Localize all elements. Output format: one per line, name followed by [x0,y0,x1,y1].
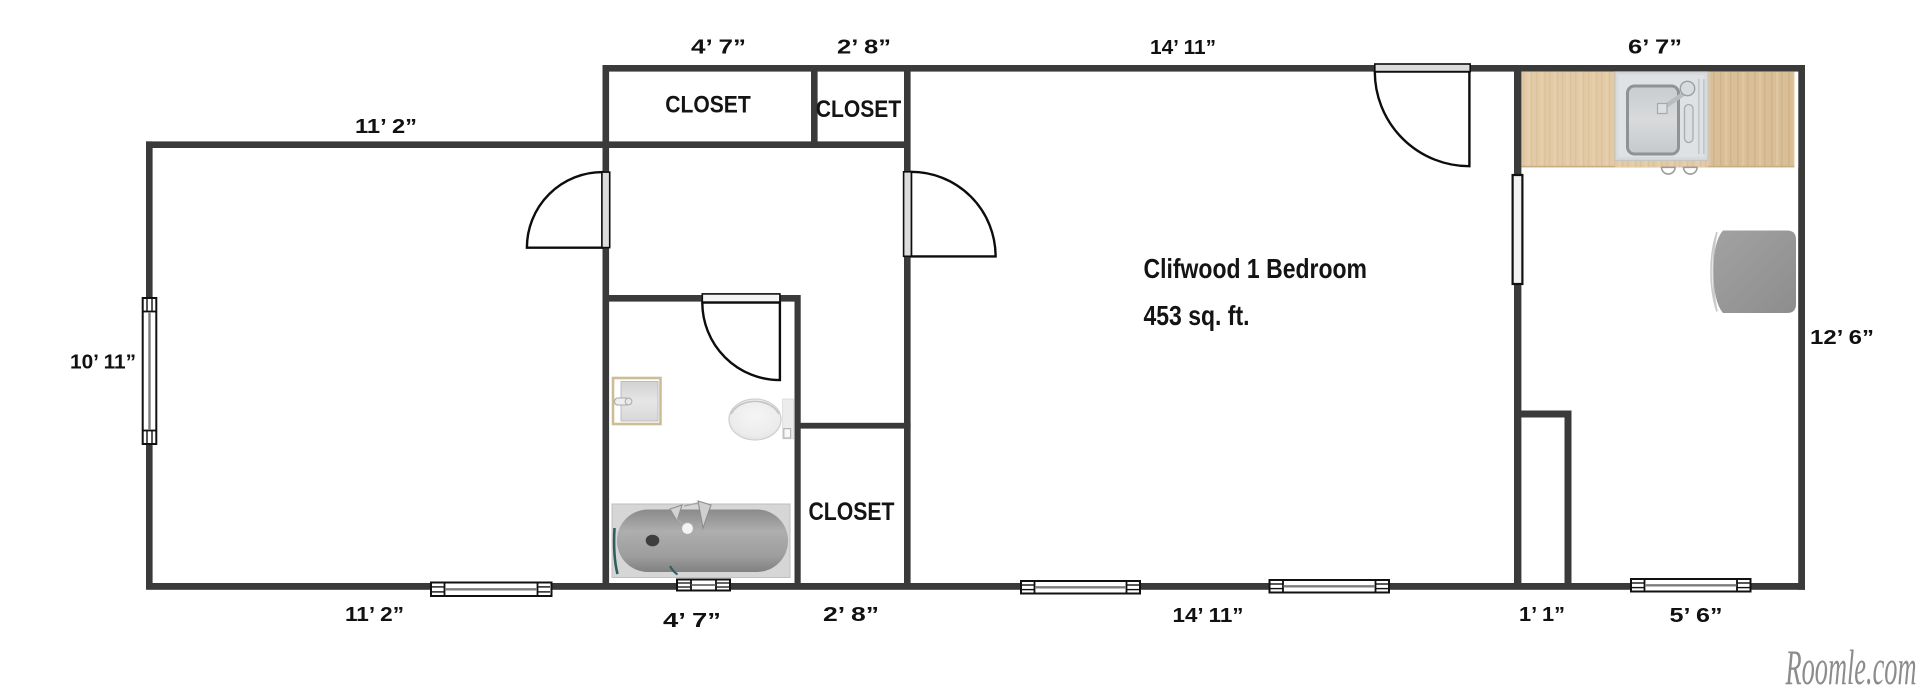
svg-text:2’ 8”: 2’ 8” [837,37,891,59]
svg-text:453 sq. ft.: 453 sq. ft. [1144,300,1250,331]
svg-text:Clifwood 1 Bedroom: Clifwood 1 Bedroom [1144,253,1368,284]
svg-text:CLOSET: CLOSET [816,96,902,123]
svg-text:14’ 11”: 14’ 11” [1173,605,1244,627]
svg-text:Roomle.com: Roomle.com [1785,639,1917,694]
svg-text:1’ 1”: 1’ 1” [1519,604,1565,626]
svg-text:CLOSET: CLOSET [665,92,751,119]
svg-text:12’ 6”: 12’ 6” [1810,327,1874,349]
svg-text:4’ 7”: 4’ 7” [663,610,721,632]
svg-text:14’ 11”: 14’ 11” [1150,37,1216,59]
svg-text:6’ 7”: 6’ 7” [1628,37,1682,59]
svg-text:11’ 2”: 11’ 2” [345,604,404,626]
svg-text:CLOSET: CLOSET [809,498,895,526]
svg-text:5’ 6”: 5’ 6” [1670,605,1723,627]
svg-text:10’ 11”: 10’ 11” [70,352,136,374]
svg-text:11’ 2”: 11’ 2” [355,116,417,138]
svg-text:4’ 7”: 4’ 7” [691,37,746,59]
svg-text:2’ 8”: 2’ 8” [823,604,879,626]
